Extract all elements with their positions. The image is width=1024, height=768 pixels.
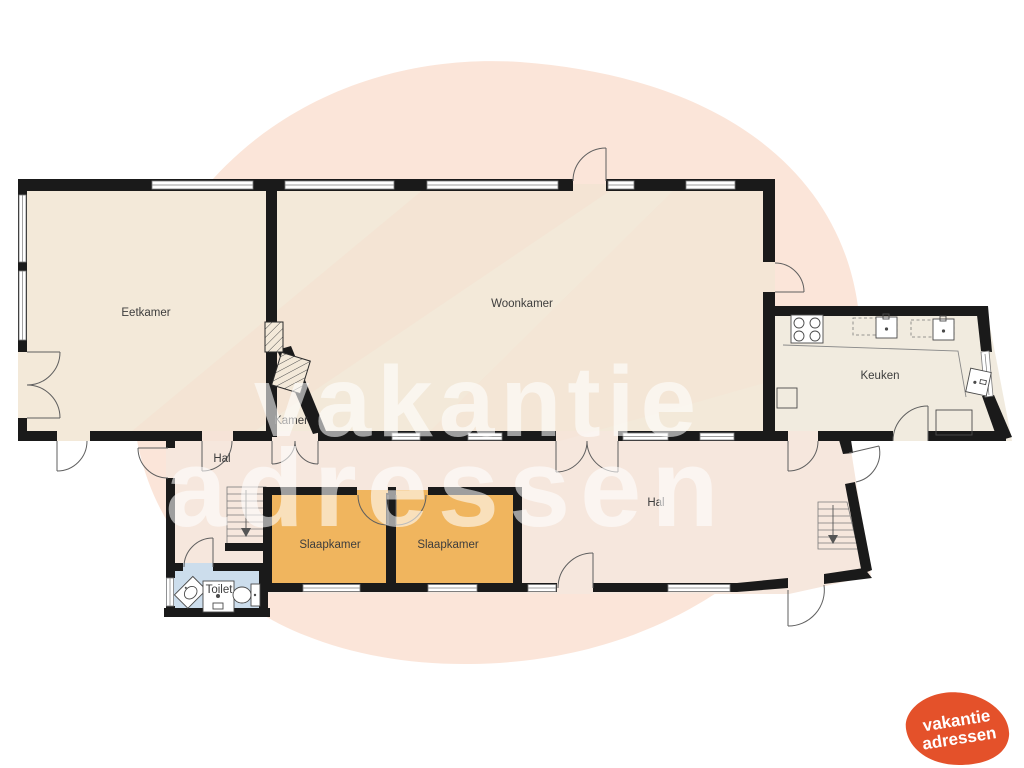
sink-icon xyxy=(966,368,992,396)
floorplan-canvas: Eetkamer Woonkamer Kamer Keuken Hal Hal … xyxy=(0,0,1024,768)
label-eetkamer: Eetkamer xyxy=(121,307,170,319)
label-woonkamer: Woonkamer xyxy=(491,298,553,310)
door-eetkamer-exterior xyxy=(57,441,87,471)
label-toilet: Toilet xyxy=(206,584,234,596)
sink-icon xyxy=(876,314,897,338)
vakantieadressen-logo: vakantie adressen xyxy=(901,688,1017,768)
label-keuken: Keuken xyxy=(860,370,899,382)
watermark-line2: adressen xyxy=(165,427,728,550)
sink-icon xyxy=(933,316,954,340)
stove-icon xyxy=(791,315,823,343)
floorplan-page: Eetkamer Woonkamer Kamer Keuken Hal Hal … xyxy=(0,0,1024,768)
